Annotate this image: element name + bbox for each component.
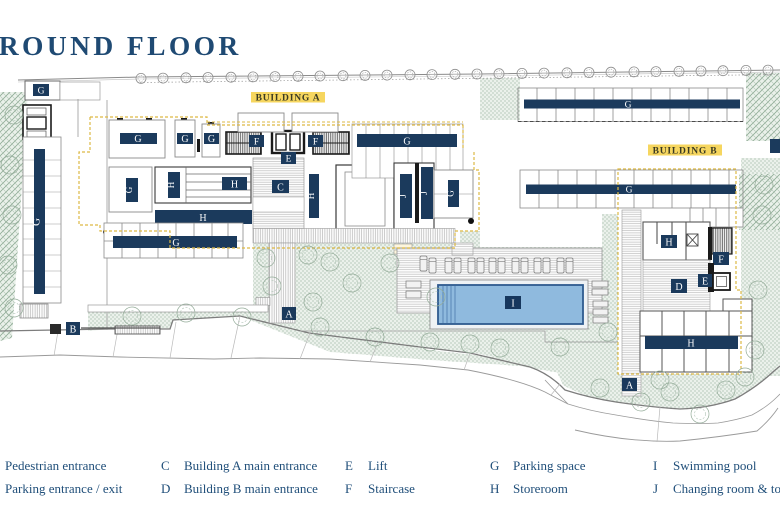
svg-text:H: H xyxy=(687,339,694,350)
svg-text:H: H xyxy=(231,180,238,191)
svg-text:F: F xyxy=(313,138,318,148)
svg-text:BUILDING B: BUILDING B xyxy=(653,147,718,157)
svg-text:G: G xyxy=(31,218,43,226)
svg-text:D: D xyxy=(161,481,170,496)
svg-text:Pedestrian entrance: Pedestrian entrance xyxy=(5,458,107,473)
svg-text:G: G xyxy=(134,134,141,145)
svg-text:Lift: Lift xyxy=(368,458,388,473)
svg-text:G: G xyxy=(403,137,410,148)
svg-text:C: C xyxy=(161,458,170,473)
svg-text:H: H xyxy=(166,181,176,188)
svg-text:E: E xyxy=(286,155,292,165)
svg-text:F: F xyxy=(718,255,724,266)
svg-text:D: D xyxy=(675,282,682,293)
svg-text:Storeroom: Storeroom xyxy=(513,481,568,496)
svg-text:E: E xyxy=(702,277,708,288)
svg-text:F: F xyxy=(254,138,259,148)
svg-text:A: A xyxy=(285,310,293,321)
svg-text:GROUND FLOOR: GROUND FLOOR xyxy=(0,30,242,61)
svg-text:I: I xyxy=(511,299,514,310)
svg-text:G: G xyxy=(446,190,456,197)
svg-text:G: G xyxy=(626,186,633,196)
svg-text:G: G xyxy=(490,458,499,473)
svg-text:F: F xyxy=(345,481,352,496)
svg-text:E: E xyxy=(345,458,353,473)
svg-text:Staircase: Staircase xyxy=(368,481,415,496)
svg-text:G: G xyxy=(208,134,215,145)
svg-text:BUILDING A: BUILDING A xyxy=(256,94,321,104)
svg-text:G: G xyxy=(124,186,134,193)
svg-text:G: G xyxy=(38,87,45,97)
svg-text:B: B xyxy=(70,325,77,336)
svg-text:H: H xyxy=(199,213,206,224)
svg-text:Parking entrance / exit: Parking entrance / exit xyxy=(5,481,123,496)
svg-text:G: G xyxy=(172,238,179,249)
svg-text:Swimming pool: Swimming pool xyxy=(673,458,757,473)
svg-text:A: A xyxy=(626,381,634,392)
svg-text:J: J xyxy=(398,194,409,198)
svg-text:G: G xyxy=(625,100,632,110)
svg-text:I: I xyxy=(653,458,657,473)
svg-text:H: H xyxy=(490,481,499,496)
svg-text:Parking space: Parking space xyxy=(513,458,586,473)
svg-text:J: J xyxy=(653,481,658,496)
svg-text:H: H xyxy=(665,238,672,249)
svg-text:H: H xyxy=(306,192,316,199)
svg-text:C: C xyxy=(277,183,284,194)
svg-text:Building B main entrance: Building B main entrance xyxy=(184,481,318,496)
svg-text:G: G xyxy=(181,134,188,145)
svg-text:J: J xyxy=(419,191,430,195)
svg-text:Changing room & toilets: Changing room & toilets xyxy=(673,481,780,496)
svg-text:Building A main entrance: Building A main entrance xyxy=(184,458,317,473)
